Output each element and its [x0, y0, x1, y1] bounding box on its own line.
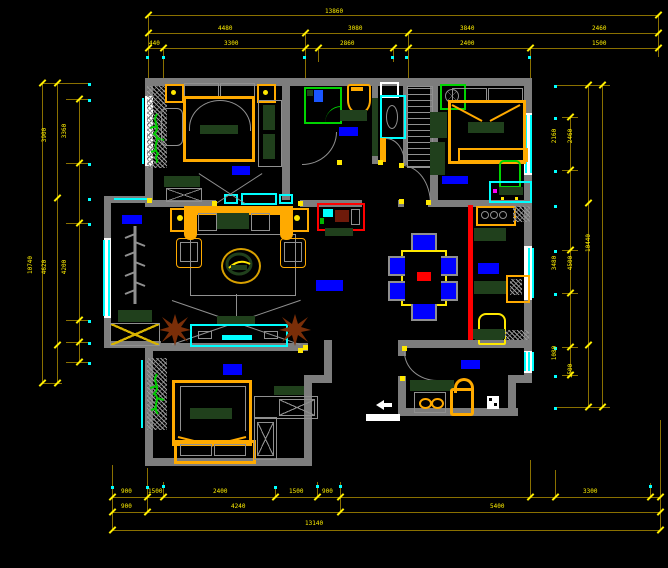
room-marker-balcony[interactable] — [122, 215, 142, 224]
bag-body — [450, 388, 474, 416]
door-hinge — [399, 163, 404, 168]
door-hinge — [337, 160, 342, 165]
lamp-icon — [171, 90, 176, 95]
toilet-tank — [351, 87, 363, 91]
dim-witness-dot — [274, 486, 277, 489]
table-bedroomTL[interactable] — [166, 188, 202, 202]
dining-chair-bottom[interactable] — [411, 304, 437, 321]
dining-chair-left-1[interactable] — [388, 256, 405, 276]
lamp-icon — [263, 90, 268, 95]
dim-label: 4240 — [231, 504, 245, 510]
dim-label: 3480 — [552, 256, 558, 270]
dim-witness-dot — [146, 56, 149, 59]
dot — [489, 398, 492, 401]
dim-extension-line — [318, 48, 319, 62]
glasses-icon — [431, 398, 444, 409]
dim-label: 3300 — [224, 41, 238, 47]
bed-bedroomBL[interactable] — [172, 380, 252, 458]
dim-witness-dot — [554, 85, 557, 88]
dim-witness-dot — [88, 223, 91, 226]
lamp-icon — [177, 215, 183, 221]
wardrobe-x-panel — [257, 422, 274, 456]
bed-pillow — [200, 125, 238, 134]
wall-step-vertical-2 — [324, 340, 332, 383]
dim-label: 2160 — [552, 129, 558, 143]
room-marker-kitchen[interactable] — [478, 263, 499, 274]
shoe-cabinet[interactable] — [410, 380, 454, 391]
shower-door-arc — [325, 106, 341, 123]
stove[interactable] — [476, 206, 516, 226]
dim-line-top-3 — [148, 48, 658, 49]
armchair-seat — [180, 242, 198, 262]
dim-witness-dot — [88, 163, 91, 166]
wardrobe-x-panel — [279, 399, 315, 416]
cad-drawing-canvas[interactable]: 1386044803080384024604403300286024001500… — [0, 0, 668, 568]
room-marker-bathroom[interactable] — [339, 127, 358, 136]
dim-line-bottom-3 — [112, 530, 660, 531]
coral — [335, 210, 349, 222]
coat-rack-plant[interactable] — [124, 226, 146, 304]
entry-direction-arrow-icon — [376, 400, 384, 410]
wardrobe-bedroomTR-b[interactable] — [430, 142, 445, 175]
dim-label: 10440 — [586, 234, 592, 252]
dim-label: 1500 — [289, 489, 303, 495]
armchair-seat — [284, 242, 302, 262]
wall-bedroomTL-bath — [282, 86, 290, 200]
plant-scribble-bedroomBL — [148, 372, 166, 420]
dim-label: 3900 — [42, 128, 48, 142]
door-hinge — [303, 345, 308, 350]
entry-door-arc — [404, 352, 437, 381]
window-balcony-top — [114, 198, 148, 200]
headboard-panel — [180, 444, 212, 456]
av-device — [198, 331, 212, 339]
washing-machine[interactable] — [110, 323, 160, 346]
dim-extension-line — [42, 83, 90, 84]
dim-witness-dot — [554, 117, 557, 120]
dim-label: 900 — [121, 489, 132, 495]
dim-extension-line — [393, 48, 394, 62]
dim-witness-dot — [88, 362, 91, 365]
burner — [499, 211, 507, 219]
wall-step-vertical-1 — [304, 378, 312, 466]
window-left-lower — [141, 360, 143, 428]
dim-label: 3840 — [460, 26, 474, 32]
dining-chair-left-2[interactable] — [388, 281, 405, 301]
wardrobe-bedroomTL[interactable] — [258, 100, 282, 167]
sofa-cushion — [251, 213, 270, 231]
dim-extension-line — [530, 460, 531, 497]
end-table-right — [287, 208, 309, 232]
bed-pillow — [468, 122, 504, 133]
shelf-bedroomBL[interactable] — [274, 386, 304, 395]
dim-witness-dot — [554, 250, 557, 253]
handbag[interactable] — [450, 378, 474, 414]
end-table-left — [170, 208, 192, 232]
bench-bedroomTL[interactable] — [164, 176, 200, 187]
dim-label: 2460 — [568, 129, 574, 143]
dresser-bedroomTR[interactable] — [489, 181, 532, 203]
entry-step — [366, 414, 400, 421]
dim-label: 1500 — [592, 41, 606, 47]
wardrobe-shelf — [263, 105, 275, 130]
dim-witness-dot — [88, 342, 91, 345]
wall-entry-right-lower — [508, 380, 516, 410]
window-entry-c — [532, 352, 534, 371]
cabinet-glass — [222, 335, 252, 340]
wall-finish-green — [372, 98, 378, 156]
room-marker-bedroom-bottom-left[interactable] — [223, 364, 242, 375]
pet-dice-block[interactable] — [487, 396, 499, 409]
dim-label: 900 — [121, 504, 132, 510]
entry-bench[interactable] — [414, 392, 446, 413]
door-hinge — [402, 346, 407, 351]
cosmetics-dot — [493, 189, 497, 193]
table-centerpiece — [417, 272, 431, 281]
dim-label: 4500 — [568, 256, 574, 270]
dim-label: 3360 — [62, 124, 68, 138]
coffee-table[interactable] — [221, 248, 261, 284]
dim-witness-dot — [303, 56, 306, 59]
filter — [351, 209, 360, 225]
dim-label: 4200 — [62, 260, 68, 274]
dim-label: 1500 — [568, 364, 574, 378]
plant-right-icon — [278, 312, 312, 348]
chair-bedroomTL[interactable] — [161, 108, 183, 146]
shower-head-icon — [314, 90, 323, 102]
dim-witness-dot — [391, 56, 394, 59]
kitchen-counter-hatch-top — [513, 206, 530, 222]
dim-extension-line — [408, 33, 409, 78]
room-marker-living-room[interactable] — [316, 280, 343, 291]
window-right-upper-b — [530, 115, 532, 173]
dim-label: 900 — [322, 489, 333, 495]
door-hinge — [298, 348, 303, 353]
window-entry-a — [524, 352, 526, 371]
dim-line-bottom-1 — [112, 497, 660, 498]
door-hinge — [399, 199, 404, 204]
dim-witness-dot — [316, 485, 319, 488]
fish — [323, 209, 333, 217]
bathroom-door-arc — [302, 132, 337, 165]
dining-chair-right-2[interactable] — [441, 281, 458, 301]
dot — [494, 403, 497, 406]
dim-witness-dot — [554, 375, 557, 378]
dim-label: 5400 — [490, 504, 504, 510]
dim-label: 2400 — [460, 41, 474, 47]
headboard-panel — [214, 444, 246, 456]
dim-label: 4480 — [218, 26, 232, 32]
shower-enclosure[interactable] — [304, 87, 342, 124]
bedroomTR-door-arc — [402, 165, 431, 204]
dim-label: 13140 — [305, 521, 323, 527]
dim-line-left-3 — [79, 99, 80, 362]
entry-hatch-box — [505, 330, 529, 340]
knob — [515, 197, 518, 200]
table-plant — [223, 250, 255, 278]
bathroom-vanity[interactable] — [340, 110, 367, 121]
sink-basin — [510, 279, 522, 295]
wall-entry-top — [398, 340, 532, 348]
aquarium-stand[interactable] — [325, 228, 353, 236]
aquarium[interactable] — [317, 203, 365, 231]
dim-witness-dot — [528, 56, 531, 59]
dim-label: 1500 — [148, 489, 162, 495]
wall-entry-left-b — [398, 376, 406, 416]
dim-line-bottom-2 — [112, 512, 660, 513]
kitchen-sink[interactable] — [506, 275, 530, 303]
av-device — [264, 331, 278, 339]
dim-label: 2400 — [213, 489, 227, 495]
dim-label: 10740 — [28, 256, 34, 274]
dim-line-top-1 — [148, 15, 658, 16]
wardrobe-bedroomBL-top[interactable] — [254, 396, 318, 419]
dim-witness-dot — [649, 485, 652, 488]
kitchen-counter-1[interactable] — [474, 228, 506, 241]
dresser-top — [499, 187, 523, 195]
drain — [307, 90, 313, 96]
wardrobe-bedroomBL-side[interactable] — [254, 417, 277, 460]
dim-line-left-2 — [57, 83, 58, 383]
dim-tick — [657, 526, 665, 534]
door-hinge — [147, 198, 152, 203]
dim-witness-dot — [554, 170, 557, 173]
door-hinge — [378, 160, 383, 165]
wardrobe-shelf — [263, 134, 275, 159]
dim-label: 3080 — [348, 26, 362, 32]
dresser-side-right[interactable] — [279, 194, 293, 204]
window-balcony-inner — [108, 240, 110, 316]
bed-pillow — [190, 408, 232, 419]
dim-label: 3300 — [583, 489, 597, 495]
dim-label: 440 — [149, 41, 160, 47]
armchair-left — [176, 238, 202, 268]
window-left-upper — [142, 98, 144, 164]
dim-witness-dot — [162, 485, 165, 488]
dim-label: 13860 — [325, 9, 343, 15]
door-hinge — [426, 200, 431, 205]
dim-witness-dot — [88, 83, 91, 86]
tv-cabinet[interactable] — [190, 324, 288, 347]
nightstand-left-bedroomTL[interactable] — [165, 84, 184, 103]
dim-witness-dot — [554, 205, 557, 208]
dim-line-top-2 — [148, 33, 658, 34]
dim-label: 1080 — [552, 346, 558, 360]
kitchen-sliding-door-track[interactable] — [468, 205, 473, 340]
room-marker-bedroom-top-right[interactable] — [442, 176, 468, 184]
dim-line-right-3 — [570, 117, 571, 375]
dim-label: 2460 — [592, 26, 606, 32]
dresser-bedroomTL[interactable] — [241, 193, 277, 205]
lamp-icon — [294, 215, 300, 221]
dim-line-right-2 — [602, 85, 603, 407]
water-plant — [320, 218, 324, 224]
burner — [490, 211, 498, 219]
dim-witness-dot — [162, 56, 165, 59]
bed-bedroomTL[interactable] — [183, 83, 255, 161]
window-entry-b — [528, 352, 530, 371]
dim-witness-dot — [88, 198, 91, 201]
plant-left-icon — [158, 312, 192, 348]
shower-tray[interactable] — [380, 95, 406, 139]
wardrobe-bedroomTR-a[interactable] — [430, 112, 447, 138]
burner — [481, 211, 489, 219]
dim-extension-line — [163, 48, 164, 80]
dim-extension-line — [658, 15, 659, 57]
sofa-cushion — [198, 213, 217, 231]
dim-label: 2860 — [340, 41, 354, 47]
dim-label: 4620 — [42, 260, 48, 274]
dim-witness-dot — [111, 486, 114, 489]
balcony-bench[interactable] — [118, 310, 152, 322]
dining-chair-top[interactable] — [411, 233, 437, 250]
dim-witness-dot — [88, 320, 91, 323]
sofa-cushion-green — [217, 213, 249, 229]
armchair-right — [280, 238, 306, 268]
door-hinge — [400, 376, 405, 381]
shower-basin — [386, 105, 398, 129]
entry-arrow-tail — [384, 403, 392, 407]
entry-cabinet-top[interactable] — [475, 331, 503, 340]
knob — [501, 197, 504, 200]
dim-witness-dot — [554, 293, 557, 296]
window-balcony-outer — [103, 240, 105, 316]
dim-extension-line — [555, 470, 556, 497]
dining-chair-right-1[interactable] — [441, 256, 458, 276]
window-kitchen-c — [532, 248, 534, 298]
dim-witness-dot — [405, 56, 408, 59]
dim-extension-line — [530, 48, 531, 78]
kitchen-counter-2[interactable] — [474, 281, 506, 294]
dim-witness-dot — [88, 99, 91, 102]
dim-extension-line — [42, 383, 62, 384]
dim-witness-dot — [339, 485, 342, 488]
dim-witness-dot — [554, 407, 557, 410]
room-marker-bedroom-top-left[interactable] — [232, 166, 250, 175]
room-marker-entry[interactable] — [461, 360, 480, 369]
